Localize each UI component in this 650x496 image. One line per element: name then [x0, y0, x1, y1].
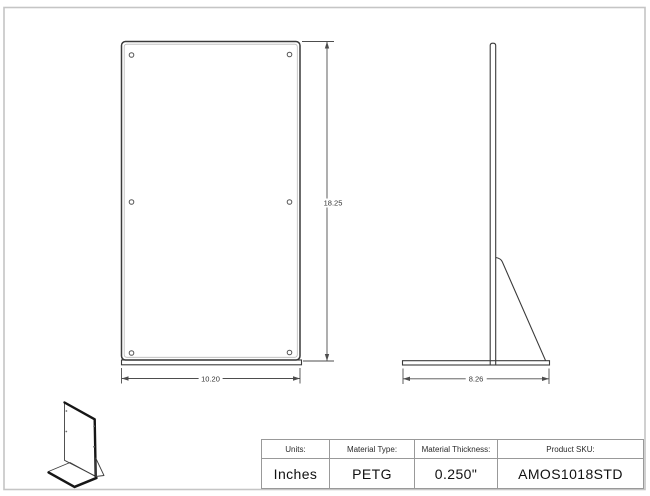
- width-dimension-label: 10.20: [198, 374, 223, 383]
- height-dimension-label: 18.25: [321, 198, 346, 207]
- spec-value-units: Inches: [262, 459, 329, 488]
- spec-header-material-thickness: Material Thickness:: [414, 440, 497, 459]
- drawing-sheet: 18.25 10.20 8.26 Units: Material Type: M…: [0, 0, 650, 496]
- spec-header-product-sku: Product SKU:: [497, 440, 643, 459]
- spec-value-material-type: PETG: [329, 459, 414, 488]
- front-view: [122, 42, 302, 365]
- front-view-dimensions: [122, 42, 335, 384]
- spec-header-units: Units:: [262, 440, 329, 459]
- spec-table: Units: Material Type: Material Thickness…: [261, 439, 644, 489]
- spec-value-product-sku: AMOS1018STD: [497, 459, 643, 488]
- drawing-frame-border: [4, 8, 645, 490]
- isometric-view: [49, 403, 105, 488]
- technical-drawing: [0, 0, 650, 496]
- spec-value-material-thickness: 0.250": [414, 459, 497, 488]
- side-view: [403, 43, 550, 365]
- depth-dimension-label: 8.26: [466, 374, 487, 383]
- spec-header-material-type: Material Type:: [329, 440, 414, 459]
